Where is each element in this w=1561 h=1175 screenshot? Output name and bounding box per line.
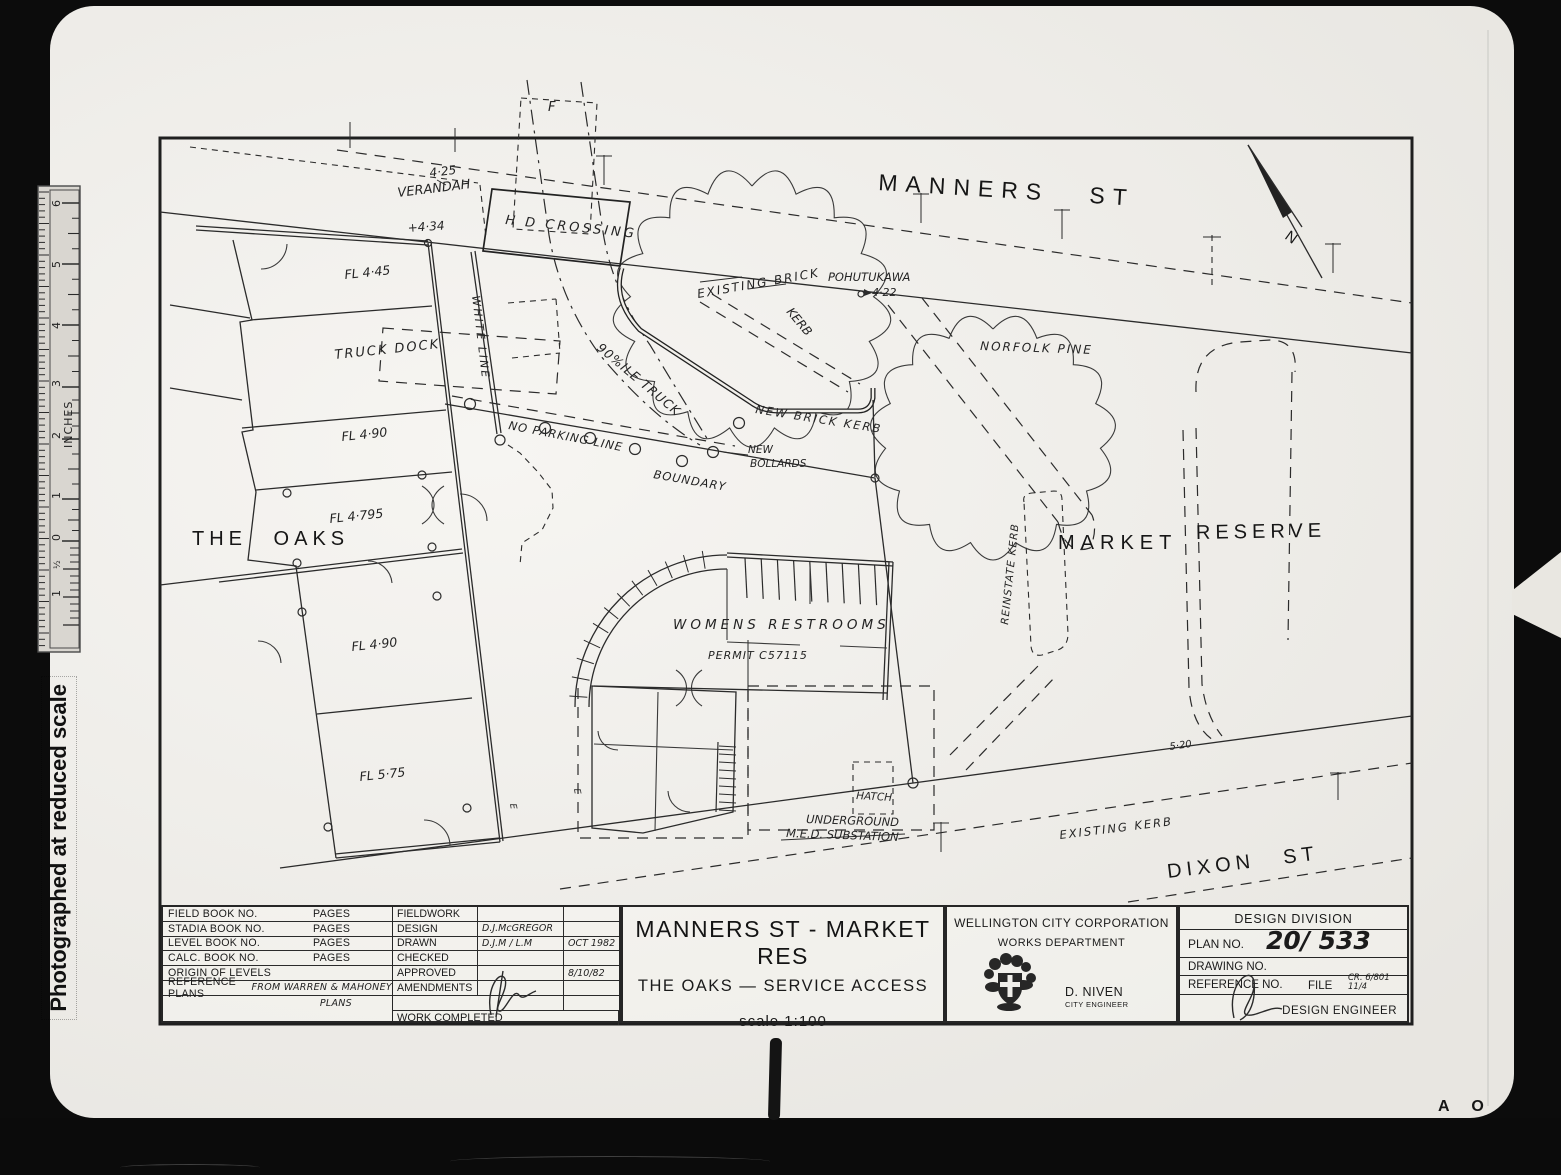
label-fl-4795: FL 4·795 (329, 505, 384, 526)
reinstate-kerb-outline (1024, 491, 1068, 655)
table-row: FIELD BOOK NO.PAGES (163, 907, 392, 922)
reference-no-row: REFERENCE NO. FILE CR. 6/801 11/4 (1180, 976, 1407, 995)
plan-linework (160, 80, 1412, 902)
work-label: DRAWN (393, 937, 478, 952)
ruler-number: 6 (50, 200, 63, 207)
label-f-mark: F (548, 100, 556, 115)
label-new-brick-kerb: NEW BRICK KERB (755, 402, 884, 436)
label-level-425: 4·25 (429, 163, 457, 180)
label-new: NEW (748, 444, 773, 456)
ruler-number: 0 (50, 534, 63, 541)
scan-scratch (120, 1164, 260, 1171)
approved-signature (481, 965, 539, 1021)
label-fl-490a: FL 4·90 (341, 424, 388, 444)
label-truck-dock: TRUCK DOCK (334, 337, 441, 363)
north-arrow (1248, 145, 1322, 278)
plan-number: 20/ 533 (1266, 926, 1371, 955)
label-reinstate-kerb: REINSTATE KERB (999, 523, 1022, 626)
street-label-dixon: DIXON ST (1166, 843, 1320, 883)
title-block: FIELD BOOK NO.PAGES STADIA BOOK NO.PAGES… (161, 905, 1411, 1023)
design-by: D.J.McGREGOR (482, 923, 553, 934)
design-engineer-signature (1220, 963, 1290, 1023)
organisation-name: WELLINGTON CITY CORPORATION (947, 916, 1176, 930)
label-level-422: 4·22 (872, 286, 897, 299)
scan-black-band (0, 1118, 1561, 1175)
reference-ruler: 6 5 4 3 2 1 0 ½ 1 INCHES (38, 186, 80, 652)
table-row: LEVEL BOOK NO.PAGES (163, 937, 392, 952)
reference-plans-note: FROM WARREN & MAHONEY (252, 982, 392, 993)
work-label: DESIGN (393, 922, 478, 937)
e-marker-2: E (571, 788, 582, 796)
label-existing-kerb: EXISTING KERB (1059, 814, 1174, 842)
label-kerb: KERB (784, 305, 815, 339)
plan-no-row: PLAN NO. 20/ 533 (1180, 930, 1407, 958)
drawing-title: MANNERS ST - MARKET RES (623, 916, 943, 970)
drawing-subtitle: THE OAKS — SERVICE ACCESS (623, 977, 943, 996)
label-norfolk-pine: NORFOLK PINE (980, 339, 1093, 357)
drawn-by: D.J.M / L.M (482, 938, 532, 949)
city-crest (979, 951, 1041, 1015)
plan-labels: MANNERS ST DIXON ST MARKET RESERVE THE O… (192, 100, 1326, 883)
table-row: REFERENCE PLANS FROM WARREN & MAHONEY (163, 981, 392, 996)
area-label-the-oaks: THE OAKS (192, 528, 349, 550)
ruler-number: ½ (53, 560, 63, 569)
approved-date: 8/10/82 (568, 968, 605, 979)
e-marker-1: E (507, 803, 518, 811)
ruler-number: 5 (50, 261, 63, 268)
drawing-scale: scale 1:100 (623, 1013, 943, 1030)
scanned-plan-sheet: MANNERS ST DIXON ST MARKET RESERVE THE O… (0, 0, 1561, 1175)
truck-dock-outline (379, 328, 560, 394)
reference-plans-note-2: PLANS (320, 998, 352, 1009)
label-fl-445: FL 4·45 (344, 262, 391, 282)
reduced-scale-note: Photographed at reduced scale (41, 676, 77, 1020)
record-table: FIELD BOOK NO.PAGES STADIA BOOK NO.PAGES… (161, 905, 621, 1023)
label-verandah: VERANDAH (397, 177, 472, 201)
organisation-dept: WORKS DEPARTMENT (947, 937, 1176, 949)
crossing-extent-dashed (513, 98, 597, 234)
area-label-market: MARKET (1058, 532, 1177, 554)
drawn-date: OCT 1982 (568, 938, 615, 949)
drawing-title-box: MANNERS ST - MARKET RES THE OAKS — SERVI… (621, 905, 945, 1023)
city-engineer-name: D. NIVEN (1065, 985, 1123, 999)
label-level-520: 5·20 (1169, 739, 1193, 753)
file-number: CR. 6/801 11/4 (1348, 974, 1390, 992)
city-engineer-title: CITY ENGINEER (1065, 1000, 1128, 1009)
bollard-circles (465, 399, 919, 789)
label-hatch: HATCH (856, 790, 893, 804)
north-label: N (1282, 227, 1301, 247)
file-label: FILE (1308, 980, 1332, 992)
organisation-box: WELLINGTON CITY CORPORATION WORKS DEPART… (945, 905, 1178, 1023)
scan-artifact-letters: A O (1438, 1098, 1493, 1116)
design-engineer-row: DESIGN ENGINEER (1180, 995, 1407, 1023)
substation-outline (748, 686, 934, 830)
work-label: CHECKED (393, 951, 478, 966)
label-fl-575: FL 5·75 (359, 764, 406, 784)
label-permit: PERMIT C57115 (708, 649, 808, 662)
label-womens-restrooms: WOMENS RESTROOMS (673, 617, 890, 633)
tree-canopy-outlines (613, 171, 1115, 560)
label-existing-brick: EXISTING BRICK (696, 266, 821, 301)
label-pohutukawa: POHUTUKAWA (828, 270, 910, 284)
design-engineer-label: DESIGN ENGINEER (1282, 1005, 1397, 1017)
label-white-line: WHITE LINE (469, 295, 492, 380)
scan-registration-mark (768, 1038, 782, 1120)
work-label: FIELDWORK (393, 907, 478, 922)
ruler-unit-label: INCHES (62, 401, 75, 448)
label-hd-crossing: H D CROSSING (505, 213, 638, 242)
label-bollards: BOLLARDS (750, 458, 807, 470)
street-label-manners: MANNERS ST (878, 169, 1136, 211)
ruler-number: 1 (50, 590, 63, 597)
ruler-number: 1 (50, 492, 63, 499)
cubicle-partitions (745, 558, 877, 605)
area-label-reserve: RESERVE (1196, 520, 1327, 544)
design-division-box: DESIGN DIVISION PLAN NO. 20/ 533 DRAWING… (1178, 905, 1409, 1023)
work-label: AMENDMENTS (393, 981, 478, 996)
ruler-number: 3 (50, 380, 63, 387)
table-row: STADIA BOOK NO.PAGES (163, 922, 392, 937)
label-med-substation: M.E.D. SUBSTATION (786, 826, 899, 844)
table-row: CALC. BOOK NO.PAGES (163, 951, 392, 966)
work-label: APPROVED (393, 966, 478, 981)
label-fl-490b: FL 4·90 (351, 634, 398, 654)
scan-scratch (450, 1156, 770, 1167)
label-level-434: +4·34 (407, 218, 445, 235)
ruler-number: 4 (50, 322, 63, 329)
label-boundary: BOUNDARY (652, 467, 727, 494)
dixon-survey-ticks (933, 772, 1346, 852)
